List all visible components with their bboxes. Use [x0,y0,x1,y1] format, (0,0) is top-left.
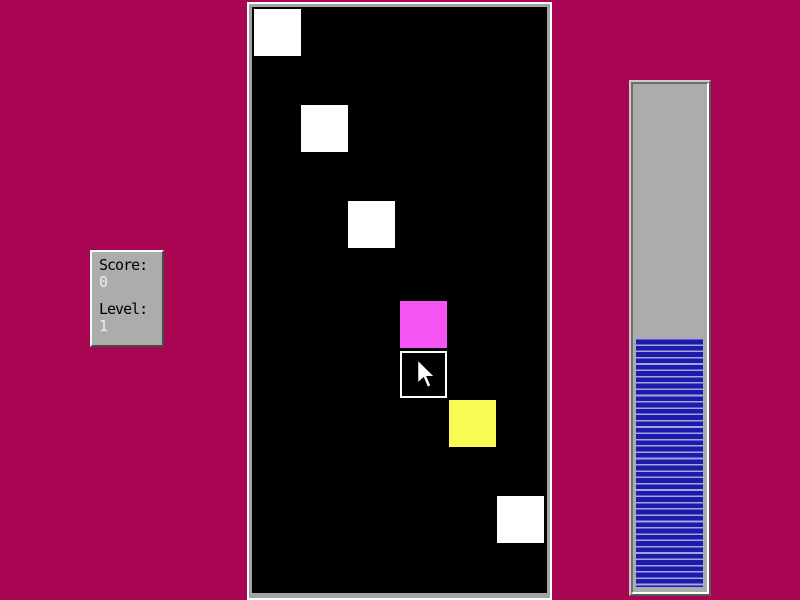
mouse-cursor-icon [416,358,437,391]
level-value: 1 [99,318,162,335]
score-value: 0 [99,274,162,291]
game-square-yellow[interactable] [449,400,496,447]
progress-track [631,82,709,594]
game-square-white[interactable] [301,105,348,152]
score-panel: Score: 0 Level: 1 [90,250,164,347]
desktop-background: Score: 0 Level: 1 [0,0,800,600]
progress-fill [636,338,703,587]
game-square-white[interactable] [348,201,395,248]
game-board-frame [247,2,552,600]
game-board[interactable] [252,7,547,593]
level-label: Level: [99,301,162,318]
game-square-magenta[interactable] [400,301,447,348]
score-label: Score: [99,257,162,274]
game-square-white[interactable] [254,9,301,56]
game-square-white[interactable] [497,496,544,543]
level-progress-meter [629,80,711,596]
